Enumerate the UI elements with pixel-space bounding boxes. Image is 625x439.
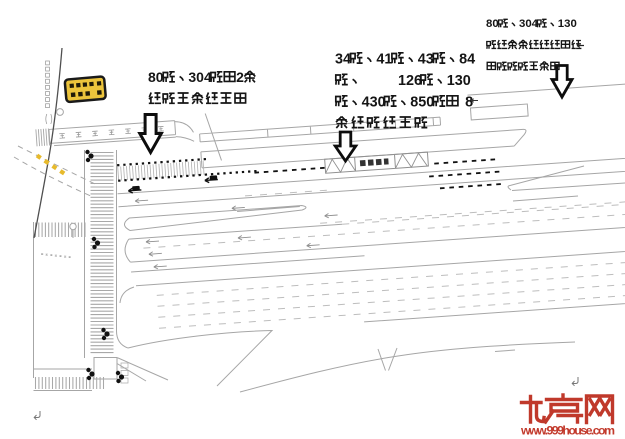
- svg-text:430: 430: [362, 94, 386, 110]
- svg-text:850: 850: [410, 94, 434, 110]
- svg-text:80: 80: [486, 18, 499, 30]
- svg-text:2: 2: [236, 69, 244, 85]
- svg-text:41: 41: [376, 51, 392, 67]
- svg-text:130: 130: [558, 18, 577, 30]
- svg-text:8: 8: [465, 94, 473, 110]
- svg-text:34: 34: [335, 51, 351, 67]
- svg-text:www.999house.com: www.999house.com: [520, 424, 615, 438]
- svg-text:304: 304: [188, 69, 212, 85]
- svg-text:43: 43: [418, 51, 434, 67]
- svg-text:84: 84: [459, 51, 475, 67]
- svg-text:80: 80: [148, 69, 164, 85]
- svg-text:130: 130: [447, 73, 471, 89]
- svg-text:304: 304: [519, 18, 539, 30]
- svg-text:126: 126: [398, 73, 422, 89]
